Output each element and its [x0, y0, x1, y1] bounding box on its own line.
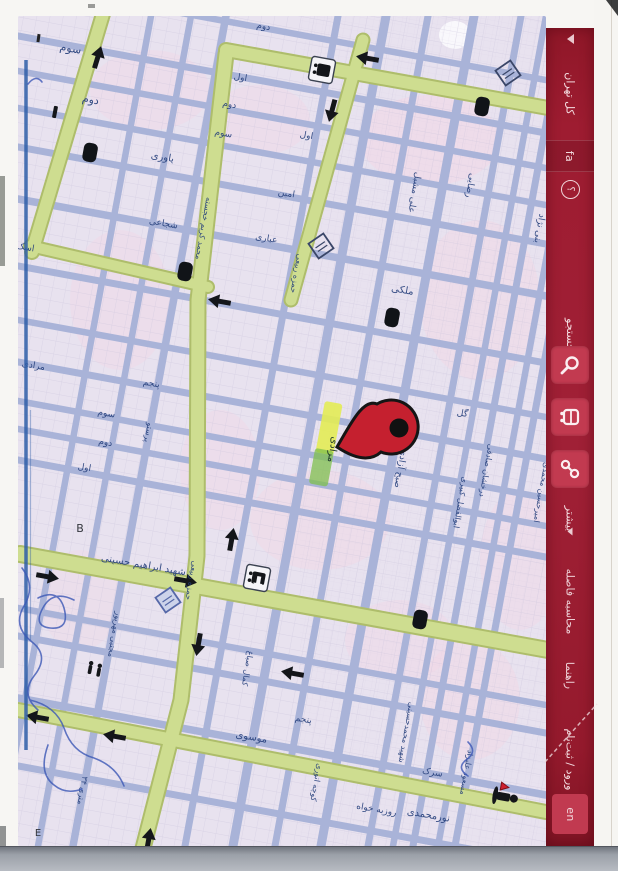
help-icon: ؟	[561, 180, 580, 199]
station-box-icon	[243, 564, 271, 592]
page-right-margin	[594, 0, 618, 871]
region-selector[interactable]: کل تهران	[546, 50, 594, 136]
scan-bottom-shadow	[0, 846, 618, 871]
calc-distance-item[interactable]: محاسبه فاصله	[546, 556, 594, 646]
street-label: B	[76, 522, 84, 535]
help-button[interactable]: ؟	[546, 174, 594, 204]
region-label: کل تهران	[564, 72, 577, 114]
more-menu[interactable]: بیشتر	[546, 492, 594, 554]
street-label: E	[35, 828, 41, 839]
route-icon	[559, 458, 581, 480]
route-button[interactable]	[551, 450, 589, 488]
map-canvas[interactable]: سومدومیاوریدومسومشجاعیاولدوماولامینعباری…	[0, 0, 618, 871]
dropdown-caret-icon	[568, 528, 573, 536]
back-arrow-icon[interactable]	[546, 30, 594, 48]
bus-icon	[559, 406, 581, 428]
lang-en-button[interactable]: en	[552, 794, 588, 834]
scanned-map-page: سومدومیاوریدومسومشجاعیاولدوماولامینعباری…	[0, 0, 618, 871]
app-sidebar: کل تهران fa ؟ جستجو	[546, 28, 594, 846]
lang-fa-button[interactable]: fa	[546, 140, 594, 172]
search-button[interactable]	[551, 346, 589, 384]
guide-item[interactable]: راهنما	[546, 648, 594, 702]
bus-routes-button[interactable]	[551, 398, 589, 436]
search-icon	[559, 354, 581, 376]
bus-box-icon	[308, 56, 336, 84]
